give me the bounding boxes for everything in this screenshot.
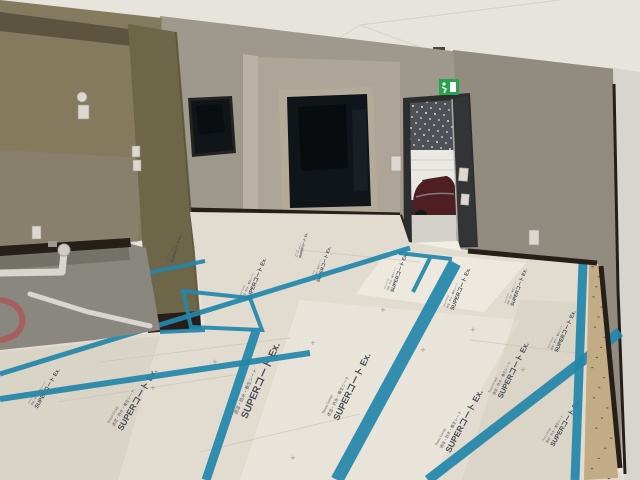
exit-sign	[439, 79, 459, 95]
column-plate-upper	[132, 146, 140, 157]
round-fixture	[77, 92, 87, 102]
wall-switch	[78, 105, 89, 119]
door-tag-upper	[458, 168, 468, 182]
room-photo: Tosco Group 透湿・防水・養生シート SUPERコート Ex. Tos…	[0, 0, 640, 480]
door-tag-lower	[460, 194, 469, 206]
tape-pit-edge	[160, 330, 205, 332]
outlet-right-wall-lower	[529, 230, 539, 245]
large-window	[279, 87, 378, 215]
scene-svg: Tosco Group 透湿・防水・養生シート SUPERコート Ex. Tos…	[0, 0, 640, 480]
plus-mark: +	[310, 339, 316, 347]
valve-stub	[48, 241, 57, 247]
plus-mark: +	[290, 454, 296, 462]
plus-mark: +	[150, 384, 156, 392]
column-plate-lower	[133, 160, 141, 171]
light-switch-by-door	[391, 156, 401, 171]
plus-mark: +	[470, 326, 476, 334]
pipe-flange	[58, 244, 70, 256]
alcove-left-jamb	[243, 54, 258, 232]
small-window	[188, 96, 236, 157]
plus-mark: +	[420, 346, 426, 354]
plus-mark: +	[380, 306, 386, 314]
plus-mark: +	[520, 366, 526, 374]
recessed-pit	[0, 238, 160, 350]
outlet-left-wall	[32, 226, 41, 239]
